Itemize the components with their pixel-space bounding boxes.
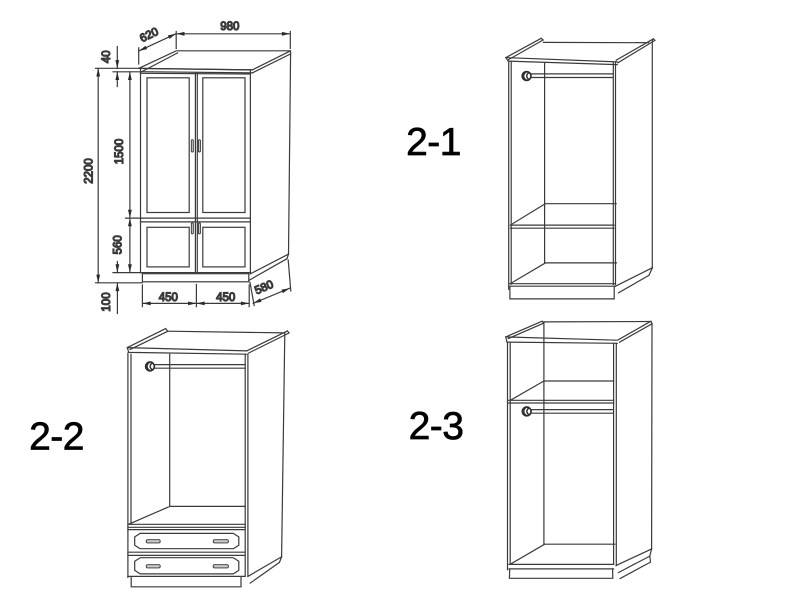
svg-text:1500: 1500 [114,139,126,165]
svg-text:40: 40 [101,50,113,63]
svg-text:560: 560 [112,235,124,254]
svg-text:2-2: 2-2 [29,416,84,459]
svg-text:450: 450 [216,292,235,304]
svg-text:580: 580 [253,279,275,298]
svg-text:2200: 2200 [83,158,95,184]
svg-text:980: 980 [220,21,239,33]
svg-text:450: 450 [159,292,178,304]
svg-text:2-1: 2-1 [406,121,461,164]
svg-text:100: 100 [101,292,113,311]
svg-text:2-3: 2-3 [409,405,464,448]
